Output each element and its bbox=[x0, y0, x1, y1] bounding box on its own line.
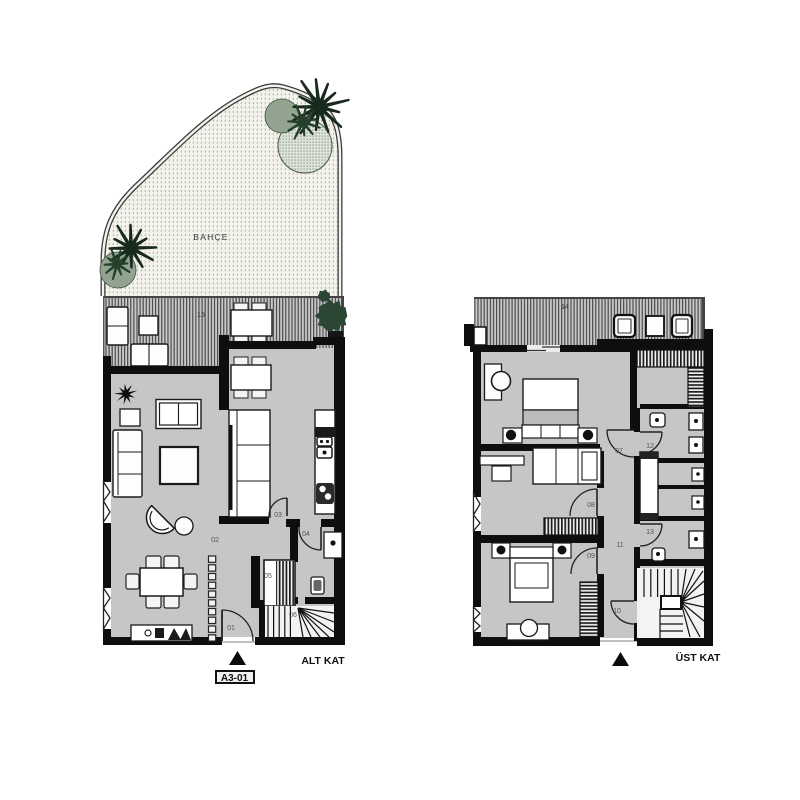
svg-text:13: 13 bbox=[646, 529, 654, 536]
svg-text:07: 07 bbox=[615, 448, 623, 455]
svg-text:A3-01: A3-01 bbox=[221, 673, 249, 684]
svg-text:15: 15 bbox=[197, 312, 205, 319]
svg-text:14: 14 bbox=[561, 304, 569, 311]
svg-text:08: 08 bbox=[587, 502, 595, 509]
svg-text:02: 02 bbox=[211, 537, 219, 544]
svg-text:06: 06 bbox=[289, 612, 297, 619]
svg-text:11: 11 bbox=[616, 542, 623, 549]
svg-text:03: 03 bbox=[274, 512, 282, 519]
svg-text:12: 12 bbox=[646, 443, 654, 450]
svg-text:01: 01 bbox=[227, 625, 235, 632]
svg-text:09: 09 bbox=[587, 553, 595, 560]
svg-text:ALT KAT: ALT KAT bbox=[301, 655, 345, 667]
svg-text:04: 04 bbox=[302, 531, 310, 538]
svg-text:ÜST KAT: ÜST KAT bbox=[676, 651, 721, 664]
svg-text:05: 05 bbox=[264, 573, 272, 580]
svg-text:10: 10 bbox=[613, 608, 621, 615]
svg-text:BAHÇE: BAHÇE bbox=[193, 232, 228, 242]
